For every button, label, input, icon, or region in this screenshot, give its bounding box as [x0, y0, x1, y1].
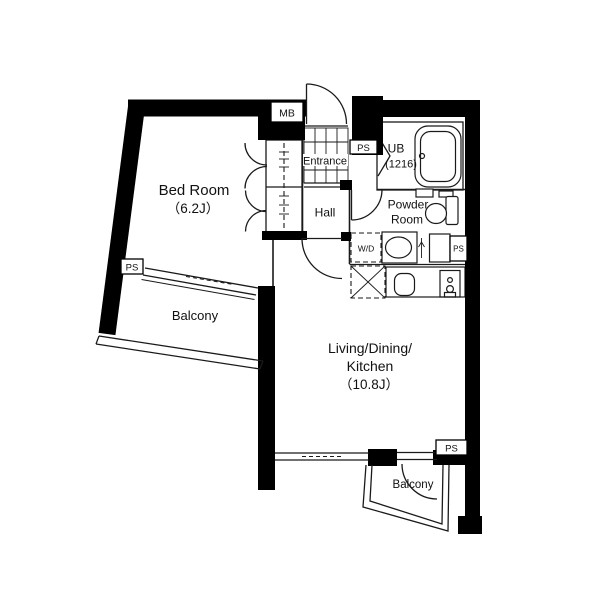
balcony-west-railing	[96, 336, 263, 369]
hall-ldk-door	[302, 239, 342, 279]
ldk-label-line2: Kitchen	[347, 358, 394, 374]
floorplan-image: MB PS PS PS PS Bed Room （6.2J） Balcony E…	[0, 0, 606, 607]
ldk-label-line1: Living/Dining/	[328, 340, 412, 356]
wall-west-slant	[107, 103, 137, 334]
bathtub	[415, 126, 461, 187]
powder-room-door	[352, 190, 383, 221]
balcony-south-door	[397, 453, 437, 500]
storage-cabinet	[430, 234, 451, 262]
pipe-space-top-label: PS	[357, 143, 370, 154]
powder-room-label-line1: Powder	[388, 198, 429, 212]
unit-bath-label: UB	[388, 142, 405, 156]
ldk-size-label: （10.8J）	[339, 377, 399, 392]
pipe-space-east-label: PS	[453, 245, 464, 254]
balcony-south-railing	[363, 465, 449, 531]
hall-label: Hall	[315, 206, 336, 220]
structural-walls	[107, 96, 482, 534]
bedroom-window	[142, 268, 259, 300]
bath-step	[416, 189, 433, 197]
floorplan-svg: MB PS PS PS PS Bed Room （6.2J） Balcony E…	[0, 0, 606, 607]
closet-door-arcs	[245, 143, 267, 232]
wall-hall-jamb-top	[340, 180, 352, 190]
kitchen-counter	[386, 267, 465, 297]
entrance-door	[307, 84, 347, 124]
kitchen-sink	[395, 274, 415, 296]
balcony-west-label: Balcony	[172, 308, 219, 323]
stove	[440, 271, 460, 298]
bedroom-size-label: （6.2J）	[167, 201, 220, 216]
wall-hall-jamb-bottom	[341, 232, 351, 241]
entrance-label: Entrance	[303, 156, 347, 168]
refrigerator-space	[351, 266, 385, 298]
room-labels: Bed Room （6.2J） Balcony Entrance Hall UB…	[159, 142, 434, 492]
meter-box-label: MB	[279, 108, 295, 120]
pipe-space-west-label: PS	[126, 263, 139, 274]
powder-room-label-line2: Room	[391, 213, 423, 227]
washbasin	[382, 232, 417, 263]
bedroom-label: Bed Room	[159, 182, 230, 199]
closet	[245, 140, 302, 233]
pipe-space-south-label: PS	[445, 444, 458, 455]
wall-south-middle	[368, 449, 397, 466]
balcony-south-label: Balcony	[393, 479, 434, 491]
washer-dryer-label: W/D	[358, 244, 375, 254]
faucet-symbol	[419, 238, 425, 258]
wall-east-foot	[458, 516, 482, 534]
wall-closet-bottom	[262, 231, 307, 240]
ldk-south-window	[275, 453, 369, 460]
unit-bath-size-label: (1216)	[385, 159, 417, 171]
